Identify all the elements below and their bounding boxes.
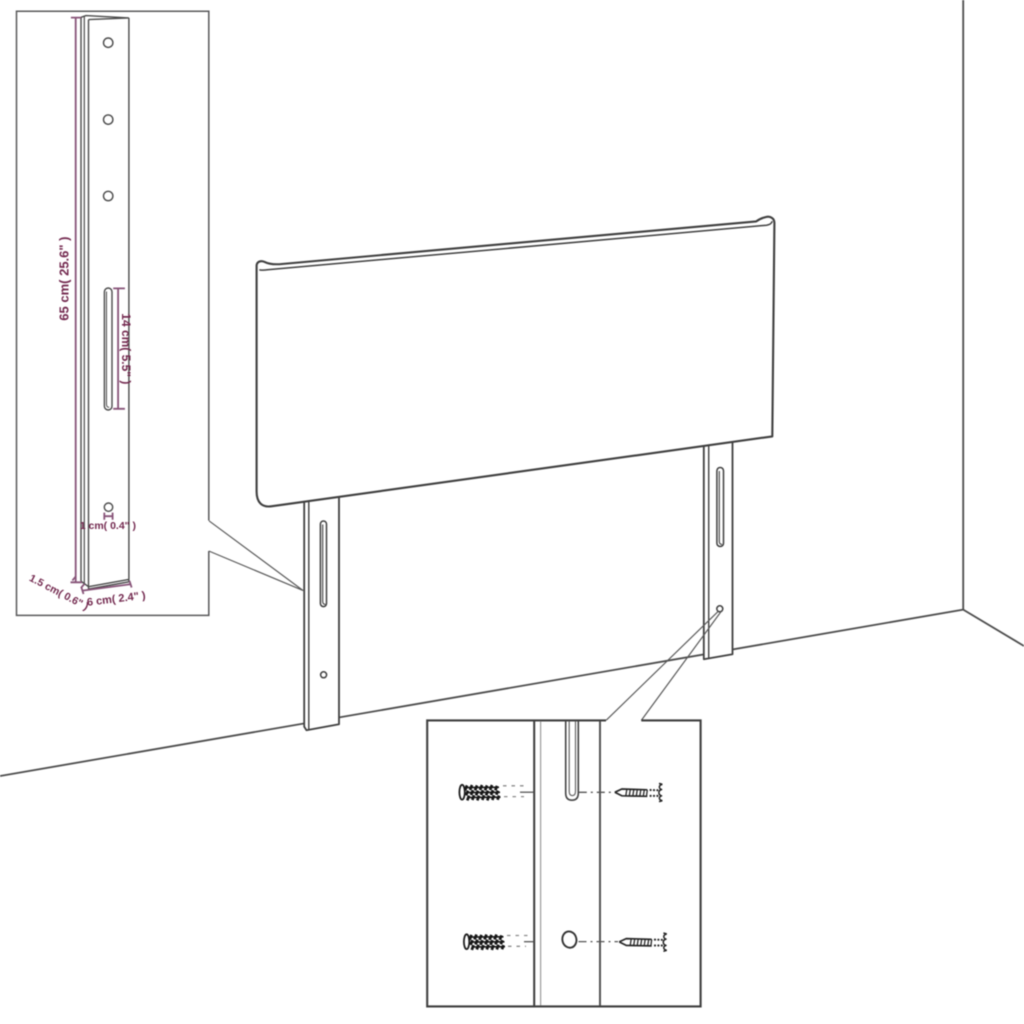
svg-text:14 cm( 5.5" ): 14 cm( 5.5" ): [119, 313, 133, 384]
svg-text:65 cm( 25.6" ): 65 cm( 25.6" ): [56, 236, 71, 320]
svg-text:1 cm( 0.4" ): 1 cm( 0.4" ): [80, 520, 136, 532]
